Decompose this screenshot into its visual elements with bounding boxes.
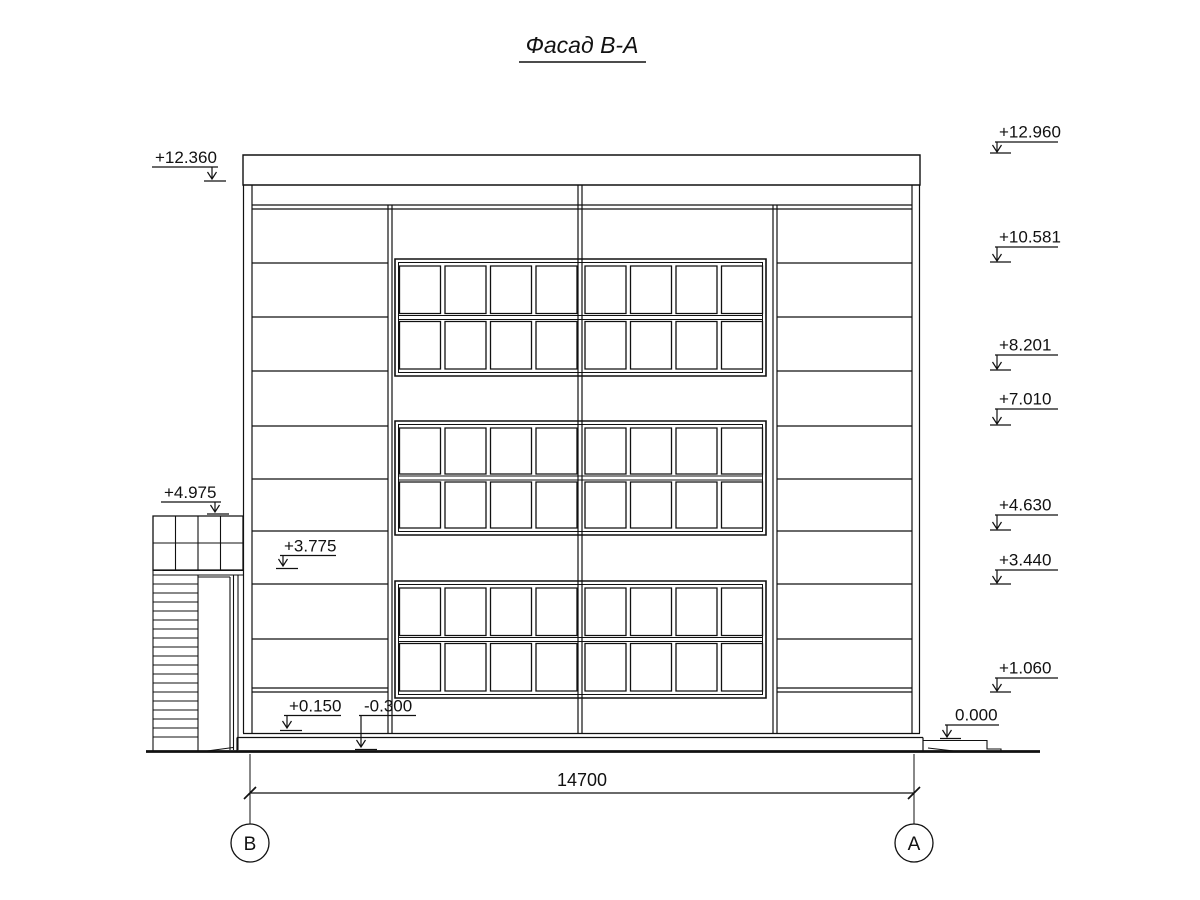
- level-arrow: [280, 716, 341, 731]
- facade-elevation-drawing: Фасад В-А +12.360 +4.975 +: [0, 0, 1200, 900]
- drawing-sheet: Фасад В-А +12.360 +4.975 +: [0, 0, 1200, 900]
- level-arrow: [152, 167, 226, 181]
- elevation-mark-4-975: +4.975: [161, 483, 229, 514]
- level-value: 0.000: [955, 706, 998, 725]
- level-arrow: [990, 409, 1058, 425]
- dimension-value: 14700: [557, 770, 607, 790]
- level-value: +7.010: [999, 390, 1051, 409]
- elevation-mark-0-000: 0.000: [940, 706, 999, 739]
- level-arrow: [161, 502, 229, 514]
- elevation-mark-3-775: +3.775: [276, 537, 336, 569]
- elevation-mark-3-440: +3.440: [990, 551, 1058, 585]
- level-arrow: [990, 355, 1058, 370]
- elevation-marks-left: +12.360 +4.975 +3.775 +0.150 -0.300: [152, 148, 416, 750]
- level-value: +10.581: [999, 228, 1061, 247]
- level-value: -0.300: [364, 697, 412, 716]
- elevation-marks-right: +12.960 +10.581 +8.201 +7.010 +4.630 +3.…: [940, 123, 1061, 739]
- level-arrow: [990, 570, 1058, 584]
- building-facade: [146, 155, 1040, 752]
- level-arrow: [940, 725, 999, 739]
- level-value: +0.150: [289, 697, 341, 716]
- level-value: +12.360: [155, 148, 217, 167]
- level-arrow: [990, 515, 1058, 530]
- stair-annex-details: [153, 516, 243, 751]
- axis-label-b: В: [244, 834, 257, 855]
- elevation-mark-4-630: +4.630: [990, 496, 1058, 531]
- elevation-mark-12-960: +12.960: [990, 123, 1061, 154]
- walls-and-joints: [244, 185, 920, 733]
- level-value: +3.775: [284, 537, 336, 556]
- elevation-mark-0-150: +0.150: [280, 697, 341, 731]
- level-value: +4.975: [164, 483, 216, 502]
- level-value: +4.630: [999, 496, 1051, 515]
- elevation-mark-12-360: +12.360: [152, 148, 226, 181]
- level-arrow: [990, 678, 1058, 692]
- elevation-mark-1-060: +1.060: [990, 659, 1058, 693]
- dimension-and-axes: 14700 В А: [231, 754, 933, 862]
- level-value: +1.060: [999, 659, 1051, 678]
- drawing-title: Фасад В-А: [519, 32, 646, 62]
- level-value: +8.201: [999, 336, 1051, 355]
- level-value: +3.440: [999, 551, 1051, 570]
- level-arrow: [276, 556, 336, 569]
- stair-stripes: [153, 584, 198, 737]
- parapet: [243, 155, 920, 185]
- level-arrow: [990, 142, 1058, 153]
- plinth: [237, 734, 923, 752]
- level-arrow: [990, 247, 1058, 262]
- level-value: +12.960: [999, 123, 1061, 142]
- window-bands: [395, 259, 766, 698]
- elevation-mark-7-010: +7.010: [990, 390, 1058, 426]
- drawing-title-text: Фасад В-А: [526, 32, 639, 58]
- axis-label-a: А: [908, 834, 921, 855]
- elevation-mark-10-581: +10.581: [990, 228, 1061, 263]
- elevation-mark-8-201: +8.201: [990, 336, 1058, 371]
- level-arrow: [355, 716, 416, 750]
- elevation-mark-minus-0-300: -0.300: [355, 697, 416, 750]
